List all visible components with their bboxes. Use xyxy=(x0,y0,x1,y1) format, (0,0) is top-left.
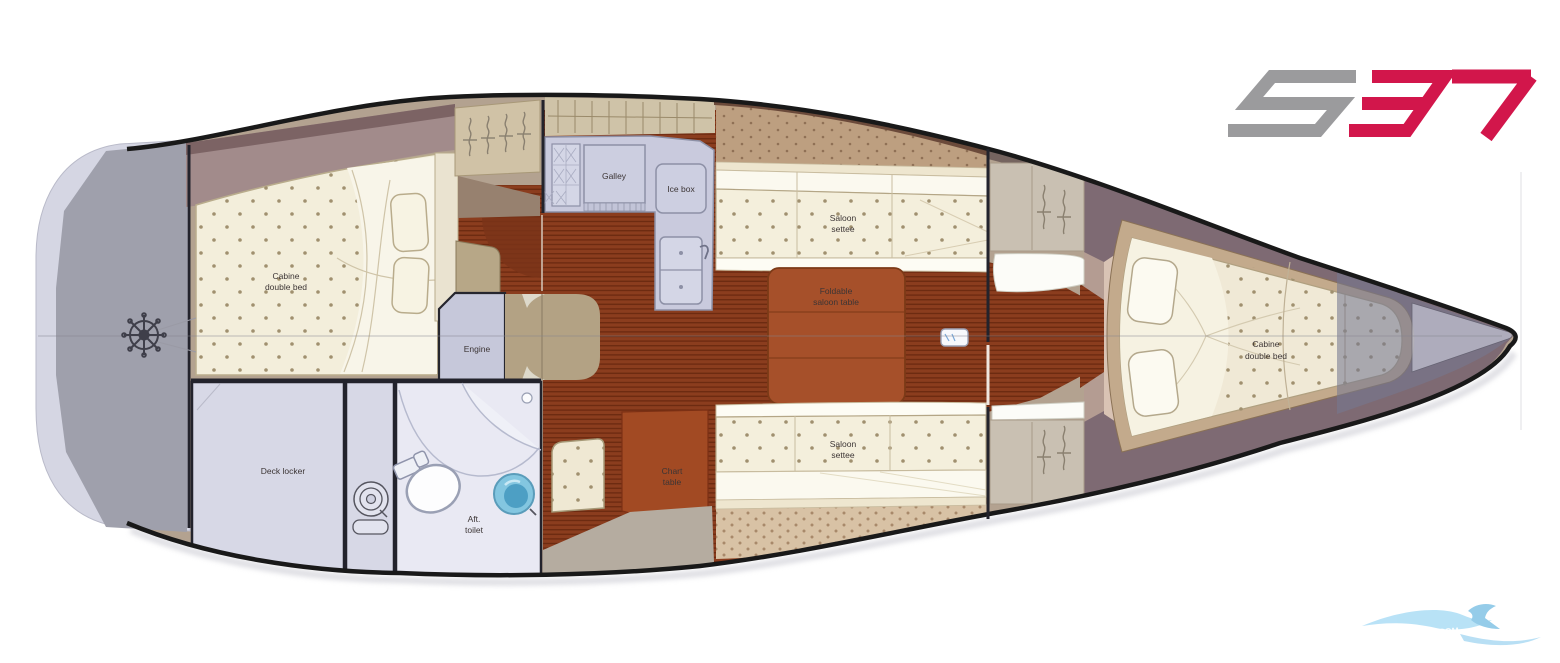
svg-text:double bed: double bed xyxy=(265,282,307,292)
svg-text:double bed: double bed xyxy=(1245,351,1287,361)
svg-text:toilet: toilet xyxy=(465,525,484,535)
svg-text:saloon table: saloon table xyxy=(813,297,859,307)
svg-text:Cabine: Cabine xyxy=(273,271,300,281)
svg-text:table: table xyxy=(663,477,682,487)
svg-text:settee: settee xyxy=(831,224,854,234)
svg-text:Saloon: Saloon xyxy=(830,439,857,449)
svg-text:Chart: Chart xyxy=(662,466,683,476)
svg-text:Cabine: Cabine xyxy=(1253,339,1280,349)
svg-text:Galley: Galley xyxy=(602,171,627,181)
svg-text:Engine: Engine xyxy=(464,344,491,354)
svg-text:COM: COM xyxy=(1439,625,1459,636)
svg-text:Aft.: Aft. xyxy=(468,514,481,524)
svg-text:settee: settee xyxy=(831,450,854,460)
svg-text:Saloon: Saloon xyxy=(830,213,857,223)
svg-text:Deck locker: Deck locker xyxy=(261,466,306,476)
svg-text:Foldable: Foldable xyxy=(820,286,853,296)
svg-text:Ice box: Ice box xyxy=(667,184,695,194)
